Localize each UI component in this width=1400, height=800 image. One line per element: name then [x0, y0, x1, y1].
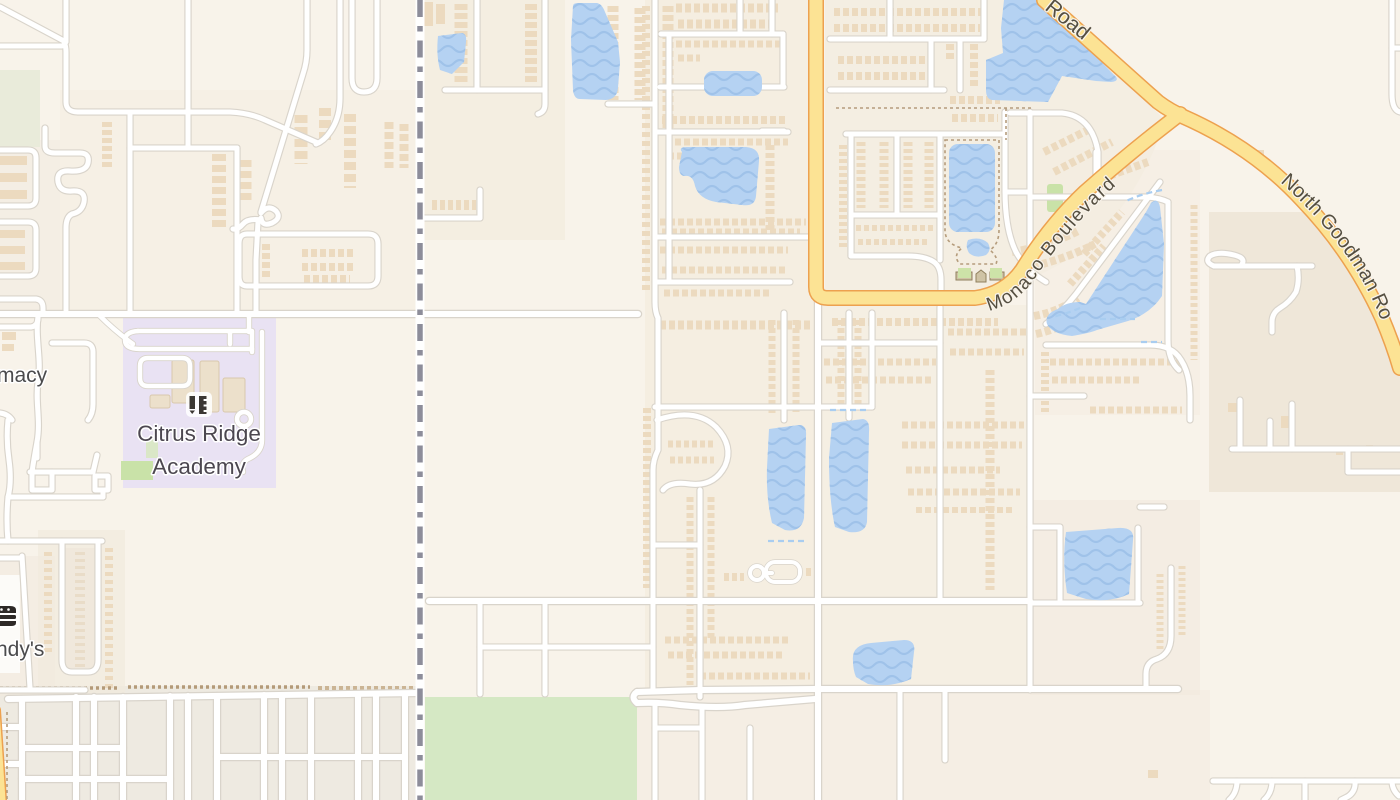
svg-text:ndy's: ndy's — [0, 638, 44, 661]
svg-text:Academy: Academy — [152, 454, 247, 479]
svg-text:Citrus Ridge: Citrus Ridge — [137, 421, 261, 446]
svg-text:macy: macy — [0, 364, 48, 387]
